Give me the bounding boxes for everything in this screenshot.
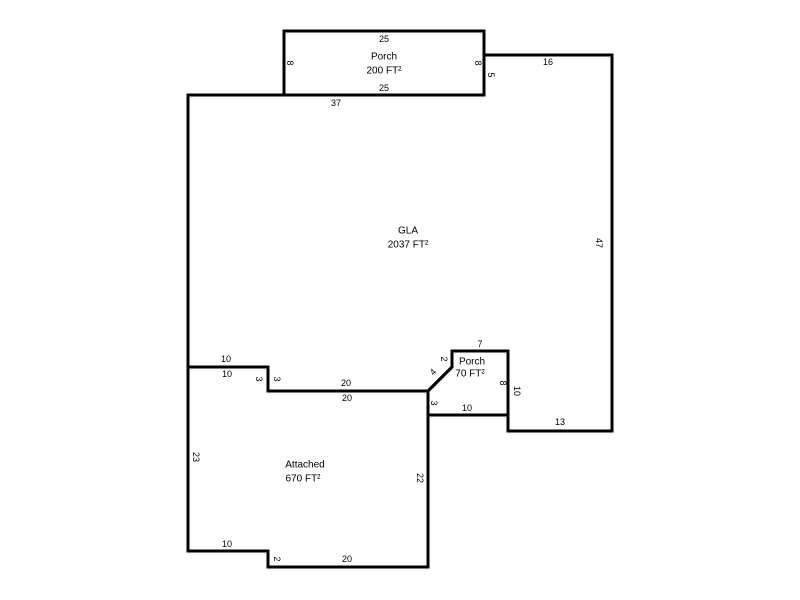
area-label-porch-small-name: Porch xyxy=(459,357,485,368)
floor-plan-sketch xyxy=(0,0,800,600)
dim-label-attached-top-10: 10 xyxy=(222,369,232,379)
dim-label-gla-notch-right: 10 xyxy=(512,386,522,396)
area-label-porch-top-sqft: 200 FT² xyxy=(366,66,401,77)
dim-label-gla-bottom-right: 13 xyxy=(555,417,565,427)
dim-label-attached-right: 22 xyxy=(415,473,425,483)
dim-label-gla-bottom-left-10: 10 xyxy=(221,354,231,364)
sketch-canvas: 25 Porch 200 FT² 25 8 8 37 5 16 47 13 10… xyxy=(0,0,800,600)
dim-label-porch-top-width-top: 25 xyxy=(379,34,389,44)
dim-label-gla-bottom-20: 20 xyxy=(341,378,351,388)
dim-label-porch-small-right: 8 xyxy=(498,380,508,385)
area-label-porch-top-name: Porch xyxy=(371,52,397,63)
dim-label-porch-top-left: 8 xyxy=(285,60,295,65)
area-label-porch-small-sqft: 70 FT² xyxy=(455,369,484,380)
dim-label-attached-left: 23 xyxy=(191,452,201,462)
dim-label-gla-notch-top: 7 xyxy=(477,339,482,349)
dim-label-gla-right-step: 5 xyxy=(486,72,496,77)
dim-label-porch-top-width-bottom: 25 xyxy=(379,83,389,93)
area-label-gla-name: GLA xyxy=(398,226,418,237)
dim-label-attached-bottom-step-2: 2 xyxy=(272,556,282,561)
dim-label-porch-small-left: 3 xyxy=(429,400,439,405)
dim-label-gla-notch-left: 2 xyxy=(439,356,449,361)
dim-label-attached-bottom-10: 10 xyxy=(222,539,232,549)
dim-label-gla-bottom-step-3: 3 xyxy=(254,376,264,381)
area-label-attached-sqft: 670 FT² xyxy=(285,474,320,485)
area-label-gla-sqft: 2037 FT² xyxy=(388,240,429,251)
dim-label-gla-top: 37 xyxy=(331,98,341,108)
dim-label-attached-bottom-20: 20 xyxy=(342,554,352,564)
area-label-attached-name: Attached xyxy=(285,460,324,471)
dim-label-attached-top-20: 20 xyxy=(342,393,352,403)
dim-label-porch-small-bottom: 10 xyxy=(462,403,472,413)
dim-label-porch-top-right: 8 xyxy=(473,60,483,65)
dim-label-gla-right: 47 xyxy=(594,238,604,248)
dim-label-gla-top-right: 16 xyxy=(543,57,553,67)
dim-label-attached-top-step-3: 3 xyxy=(272,376,282,381)
